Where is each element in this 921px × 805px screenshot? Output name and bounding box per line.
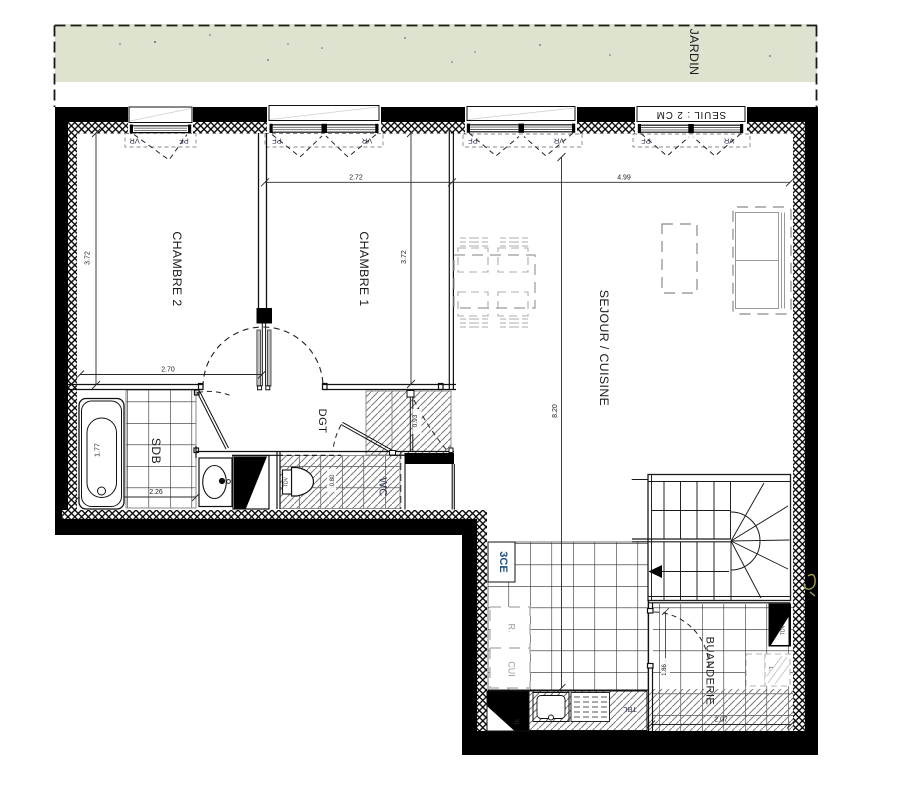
svg-text:CHAMBRE 1: CHAMBRE 1 — [357, 231, 371, 306]
svg-text:TE: TE — [515, 718, 521, 725]
svg-text:R.: R. — [507, 624, 517, 633]
svg-text:2.72: 2.72 — [349, 174, 363, 181]
svg-text:WC: WC — [377, 477, 389, 496]
svg-text:DGT: DGT — [316, 409, 328, 434]
svg-text:3.72: 3.72 — [401, 250, 408, 264]
svg-text:SEJOUR / CUISINE: SEJOUR / CUISINE — [597, 290, 611, 406]
svg-text:TBL: TBL — [623, 705, 637, 714]
svg-text:CHAMBRE 2: CHAMBRE 2 — [170, 231, 184, 306]
svg-text:JARDIN: JARDIN — [687, 29, 701, 76]
svg-text:VR: VR — [129, 137, 140, 146]
svg-text:2.70: 2.70 — [161, 367, 175, 374]
svg-text:3CE: 3CE — [497, 551, 509, 572]
svg-text:VR: VR — [553, 137, 564, 146]
svg-text:8.20: 8.20 — [552, 404, 559, 418]
svg-text:0.80: 0.80 — [330, 474, 336, 486]
svg-text:TDV: TDV — [284, 476, 290, 487]
svg-text:3.72: 3.72 — [85, 251, 92, 265]
svg-text:BUANDERIE: BUANDERIE — [704, 637, 716, 706]
svg-text:SEUIL : 2 CM: SEUIL : 2 CM — [656, 109, 726, 120]
svg-text:L.: L. — [767, 667, 773, 671]
svg-text:1.86: 1.86 — [662, 664, 668, 676]
svg-text:CUI: CUI — [507, 661, 517, 677]
svg-text:2.26: 2.26 — [149, 489, 163, 496]
svg-text:4.99: 4.99 — [617, 174, 631, 181]
svg-text:0.93: 0.93 — [412, 414, 419, 427]
svg-text:SDB: SDB — [149, 438, 163, 464]
svg-text:TDV: TDV — [781, 624, 787, 635]
svg-text:VR: VR — [361, 137, 372, 146]
svg-text:1.77: 1.77 — [95, 443, 102, 457]
svg-text:2.07: 2.07 — [714, 717, 728, 724]
svg-text:PF: PF — [468, 137, 478, 146]
svg-text:PF: PF — [179, 137, 189, 146]
